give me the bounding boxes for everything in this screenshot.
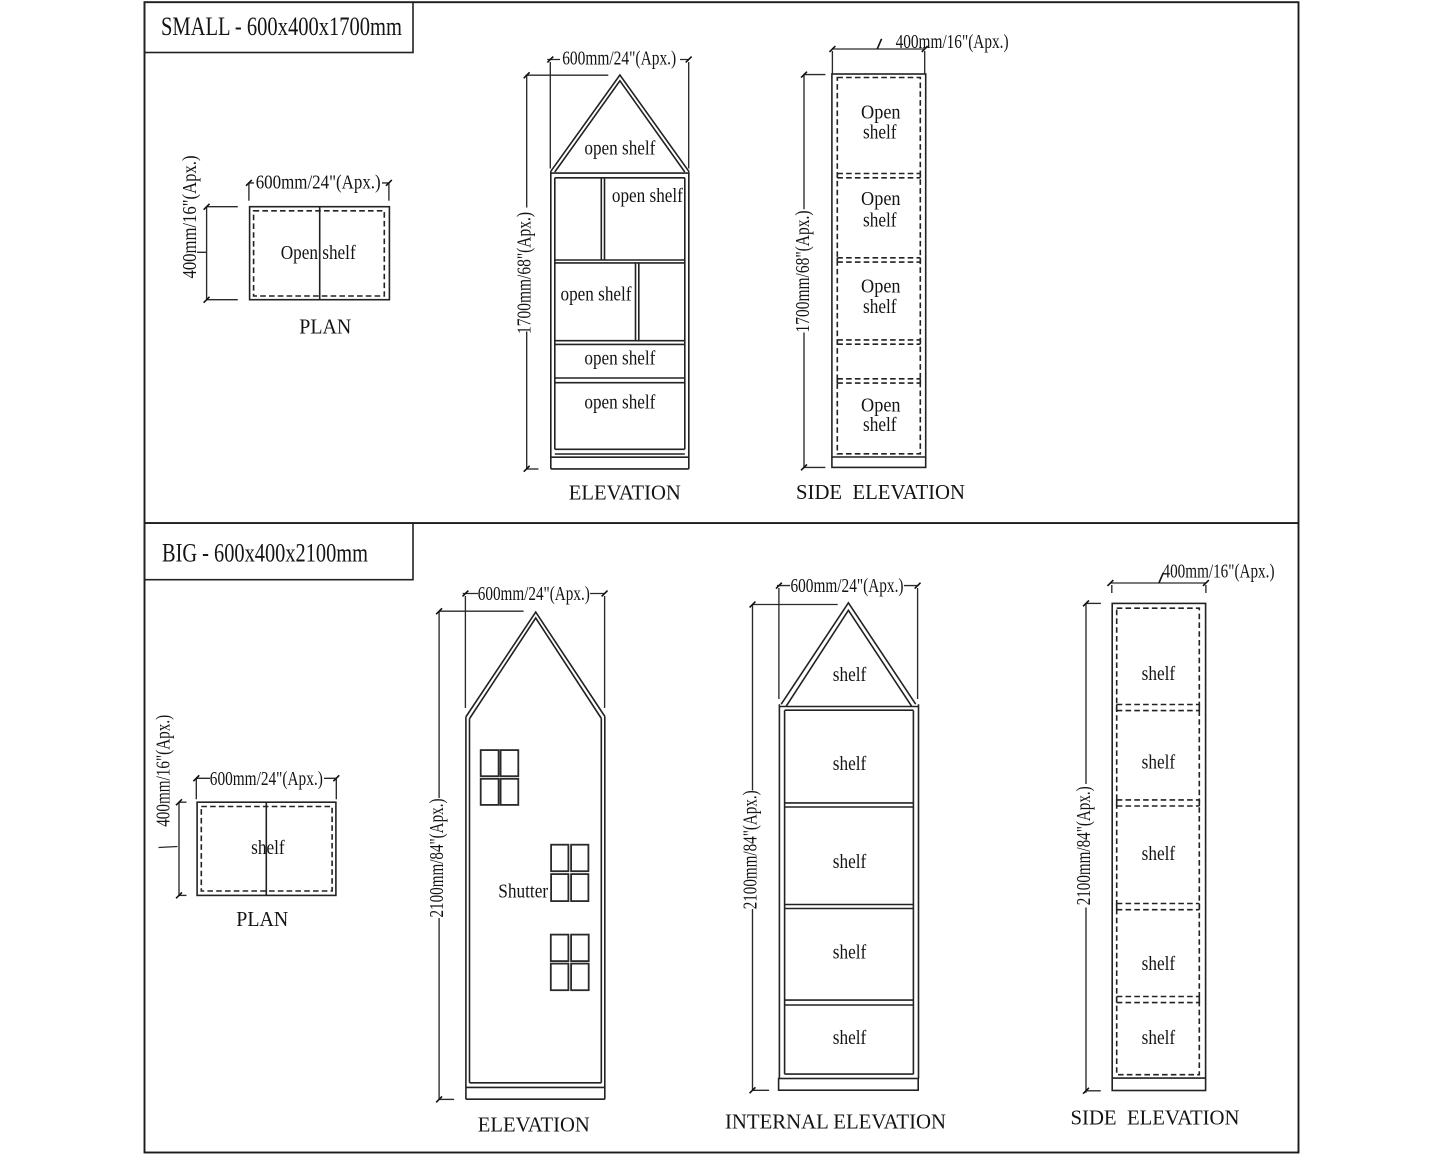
svg-text:INTERNAL ELEVATION: INTERNAL ELEVATION (725, 1109, 946, 1133)
svg-text:400mm/16"(Apx.): 400mm/16"(Apx.) (1163, 560, 1275, 582)
svg-text:BIG - 600x400x2100mm: BIG - 600x400x2100mm (162, 538, 368, 567)
svg-text:shelf: shelf (1142, 751, 1176, 773)
svg-text:shelf: shelf (1142, 1027, 1176, 1049)
svg-text:open shelf: open shelf (584, 392, 655, 414)
svg-text:2100mm/84"(Apx.): 2100mm/84"(Apx.) (1073, 786, 1095, 905)
svg-text:shelf: shelf (863, 296, 897, 318)
svg-text:2100mm/84"(Apx.): 2100mm/84"(Apx.) (426, 799, 448, 918)
svg-text:600mm/24"(Apx.): 600mm/24"(Apx.) (256, 172, 381, 194)
svg-text:Open: Open (861, 276, 901, 298)
svg-text:SIDE ELEVATION: SIDE ELEVATION (1071, 1105, 1240, 1129)
svg-text:Open: Open (861, 188, 901, 210)
svg-text:shelf: shelf (863, 122, 897, 144)
svg-text:600mm/24"(Apx.): 600mm/24"(Apx.) (478, 583, 590, 605)
svg-text:ELEVATION: ELEVATION (569, 481, 681, 505)
svg-text:shelf: shelf (863, 414, 897, 436)
svg-text:shelf: shelf (833, 942, 867, 964)
svg-text:shelf: shelf (833, 664, 867, 686)
svg-text:600mm/24"(Apx.): 600mm/24"(Apx.) (562, 47, 676, 69)
svg-text:shelf: shelf (251, 837, 285, 859)
svg-text:2100mm/84"(Apx.): 2100mm/84"(Apx.) (739, 790, 761, 909)
svg-text:600mm/24"(Apx.): 600mm/24"(Apx.) (791, 575, 904, 597)
svg-text:400mm/16"(Apx.): 400mm/16"(Apx.) (153, 715, 175, 827)
svg-text:shelf: shelf (863, 209, 897, 231)
svg-text:shelf: shelf (833, 1027, 867, 1049)
svg-text:1700mm/68"(Apx.): 1700mm/68"(Apx.) (514, 212, 536, 334)
svg-text:SIDE ELEVATION: SIDE ELEVATION (796, 480, 965, 504)
svg-text:Shutter: Shutter (498, 881, 548, 903)
svg-text:Open shelf: Open shelf (281, 242, 356, 264)
svg-text:shelf: shelf (1142, 953, 1176, 975)
svg-text:400mm/16"(Apx.): 400mm/16"(Apx.) (896, 31, 1009, 53)
svg-text:ELEVATION: ELEVATION (478, 1113, 590, 1137)
svg-text:open shelf: open shelf (561, 283, 632, 305)
svg-text:shelf: shelf (833, 851, 867, 873)
svg-text:SMALL - 600x400x1700mm: SMALL - 600x400x1700mm (161, 12, 402, 41)
svg-text:PLAN: PLAN (299, 314, 351, 338)
svg-text:PLAN: PLAN (236, 907, 288, 931)
svg-text:600mm/24"(Apx.): 600mm/24"(Apx.) (210, 768, 323, 790)
svg-text:1700mm/68"(Apx.): 1700mm/68"(Apx.) (792, 211, 814, 333)
svg-text:open shelf: open shelf (584, 137, 655, 159)
svg-text:open shelf: open shelf (584, 348, 655, 370)
svg-text:400mm/16"(Apx.): 400mm/16"(Apx.) (179, 156, 201, 279)
svg-text:shelf: shelf (1142, 843, 1176, 865)
svg-text:Open: Open (861, 101, 901, 123)
svg-text:open shelf: open shelf (612, 185, 683, 207)
svg-text:shelf: shelf (833, 753, 867, 775)
svg-text:shelf: shelf (1142, 663, 1176, 685)
